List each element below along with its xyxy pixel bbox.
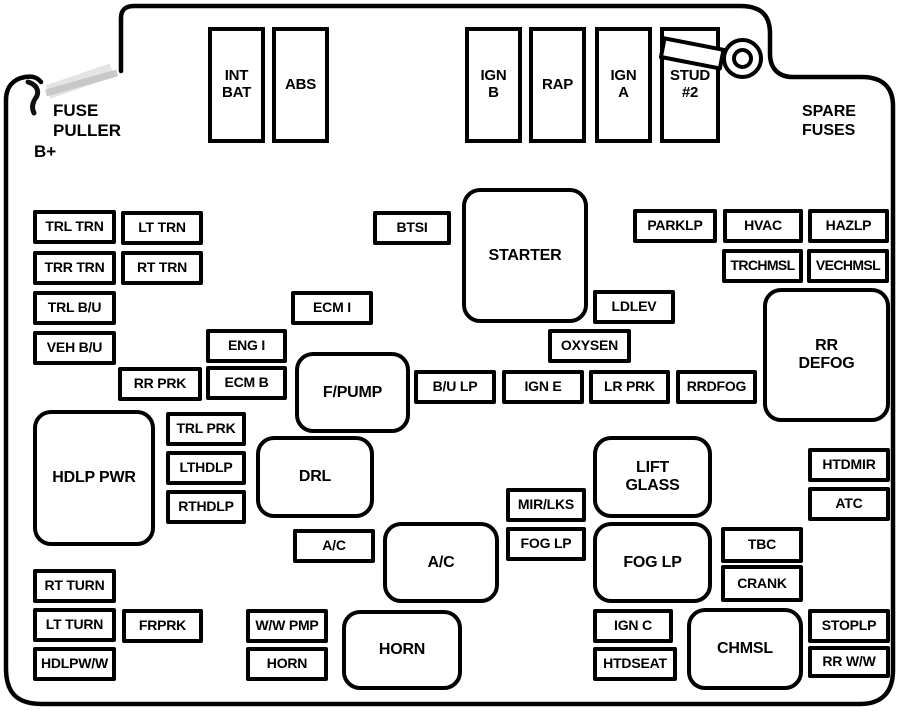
fuse-hazlp: HAZLP xyxy=(808,209,889,243)
fuse-ign-a: IGN A xyxy=(595,27,652,143)
fuse-rrdfog: RRDFOG xyxy=(676,370,757,404)
fuse-lift-glass: LIFT GLASS xyxy=(593,436,712,518)
fuse-horn-small: HORN xyxy=(246,647,328,681)
fuse-parklp: PARKLP xyxy=(633,209,717,243)
fuse-ldlev: LDLEV xyxy=(593,290,675,324)
fuse-hdlpww: HDLPW/W xyxy=(33,647,116,681)
fuse-vechmsl: VECHMSL xyxy=(807,249,889,283)
fuse-fog-lp-large: FOG LP xyxy=(593,522,712,603)
fuse-ecm-b: ECM B xyxy=(206,366,287,400)
fuse-hvac: HVAC xyxy=(723,209,803,243)
fuse-trl-trn: TRL TRN xyxy=(33,210,116,244)
fuse-oxysen: OXYSEN xyxy=(548,329,631,363)
fuse-rthdlp: RTHDLP xyxy=(166,490,246,524)
spare-fuses-label: SPARE FUSES xyxy=(802,103,856,141)
fuse-starter: STARTER xyxy=(462,188,588,323)
stud-ring-inner-icon xyxy=(732,48,753,69)
fuse-int-bat: INT BAT xyxy=(208,27,265,143)
fuse-trchmsl: TRCHMSL xyxy=(722,249,803,283)
fuse-ww-pmp: W/W PMP xyxy=(246,609,328,643)
fuse-htdseat: HTDSEAT xyxy=(593,647,677,681)
fuse-atc: ATC xyxy=(808,487,890,521)
fuse-rt-trn: RT TRN xyxy=(121,251,203,285)
fuse-ecm-i: ECM I xyxy=(291,291,373,325)
fuse-mir-lks: MIR/LKS xyxy=(506,488,586,522)
b-plus-label: B+ xyxy=(34,142,56,162)
fuse-ign-c: IGN C xyxy=(593,609,673,643)
fuse-lr-prk: LR PRK xyxy=(589,370,670,404)
fuse-puller-icon xyxy=(28,82,38,113)
fuse-ac-large: A/C xyxy=(383,522,499,603)
fuse-f-pump: F/PUMP xyxy=(295,352,410,433)
fuse-bu-lp: B/U LP xyxy=(414,370,496,404)
fuse-btsi: BTSI xyxy=(373,211,451,245)
fuse-crank: CRANK xyxy=(721,565,803,602)
fuse-ign-e: IGN E xyxy=(502,370,584,404)
fuse-hdlp-pwr: HDLP PWR xyxy=(33,410,155,546)
fuse-htdmir: HTDMIR xyxy=(808,448,890,482)
fuse-drl: DRL xyxy=(256,436,374,518)
fuse-ac-small: A/C xyxy=(293,529,375,563)
fuse-veh-bu: VEH B/U xyxy=(33,331,116,365)
fuse-trr-trn: TRR TRN xyxy=(33,251,116,285)
fuse-tbc: TBC xyxy=(721,527,803,563)
fuse-trl-bu: TRL B/U xyxy=(33,291,116,325)
fuse-fog-lp-small: FOG LP xyxy=(506,527,586,561)
fuse-lthdlp: LTHDLP xyxy=(166,451,246,485)
fuse-rt-turn: RT TURN xyxy=(33,569,116,603)
fuse-abs: ABS xyxy=(272,27,329,143)
fuse-rr-prk: RR PRK xyxy=(118,367,202,401)
fuse-rr-defog: RR DEFOG xyxy=(763,288,890,422)
fuse-rap: RAP xyxy=(529,27,586,143)
fuse-stoplp: STOPLP xyxy=(808,609,890,643)
fuse-trl-prk: TRL PRK xyxy=(166,412,246,446)
fuse-ign-b: IGN B xyxy=(465,27,522,143)
fuse-rr-ww: RR W/W xyxy=(808,646,890,678)
fuse-frprk: FRPRK xyxy=(122,609,203,643)
fuse-eng-i: ENG I xyxy=(206,329,287,363)
fuse-chmsl: CHMSL xyxy=(687,608,803,690)
fuse-puller-label: FUSE PULLER xyxy=(53,101,121,141)
fuse-horn-large: HORN xyxy=(342,610,462,690)
fuse-box-diagram: INT BAT ABS IGN B RAP IGN A STUD #2 TRL … xyxy=(0,0,900,719)
fuse-lt-turn: LT TURN xyxy=(33,608,116,642)
fuse-lt-trn: LT TRN xyxy=(121,211,203,245)
